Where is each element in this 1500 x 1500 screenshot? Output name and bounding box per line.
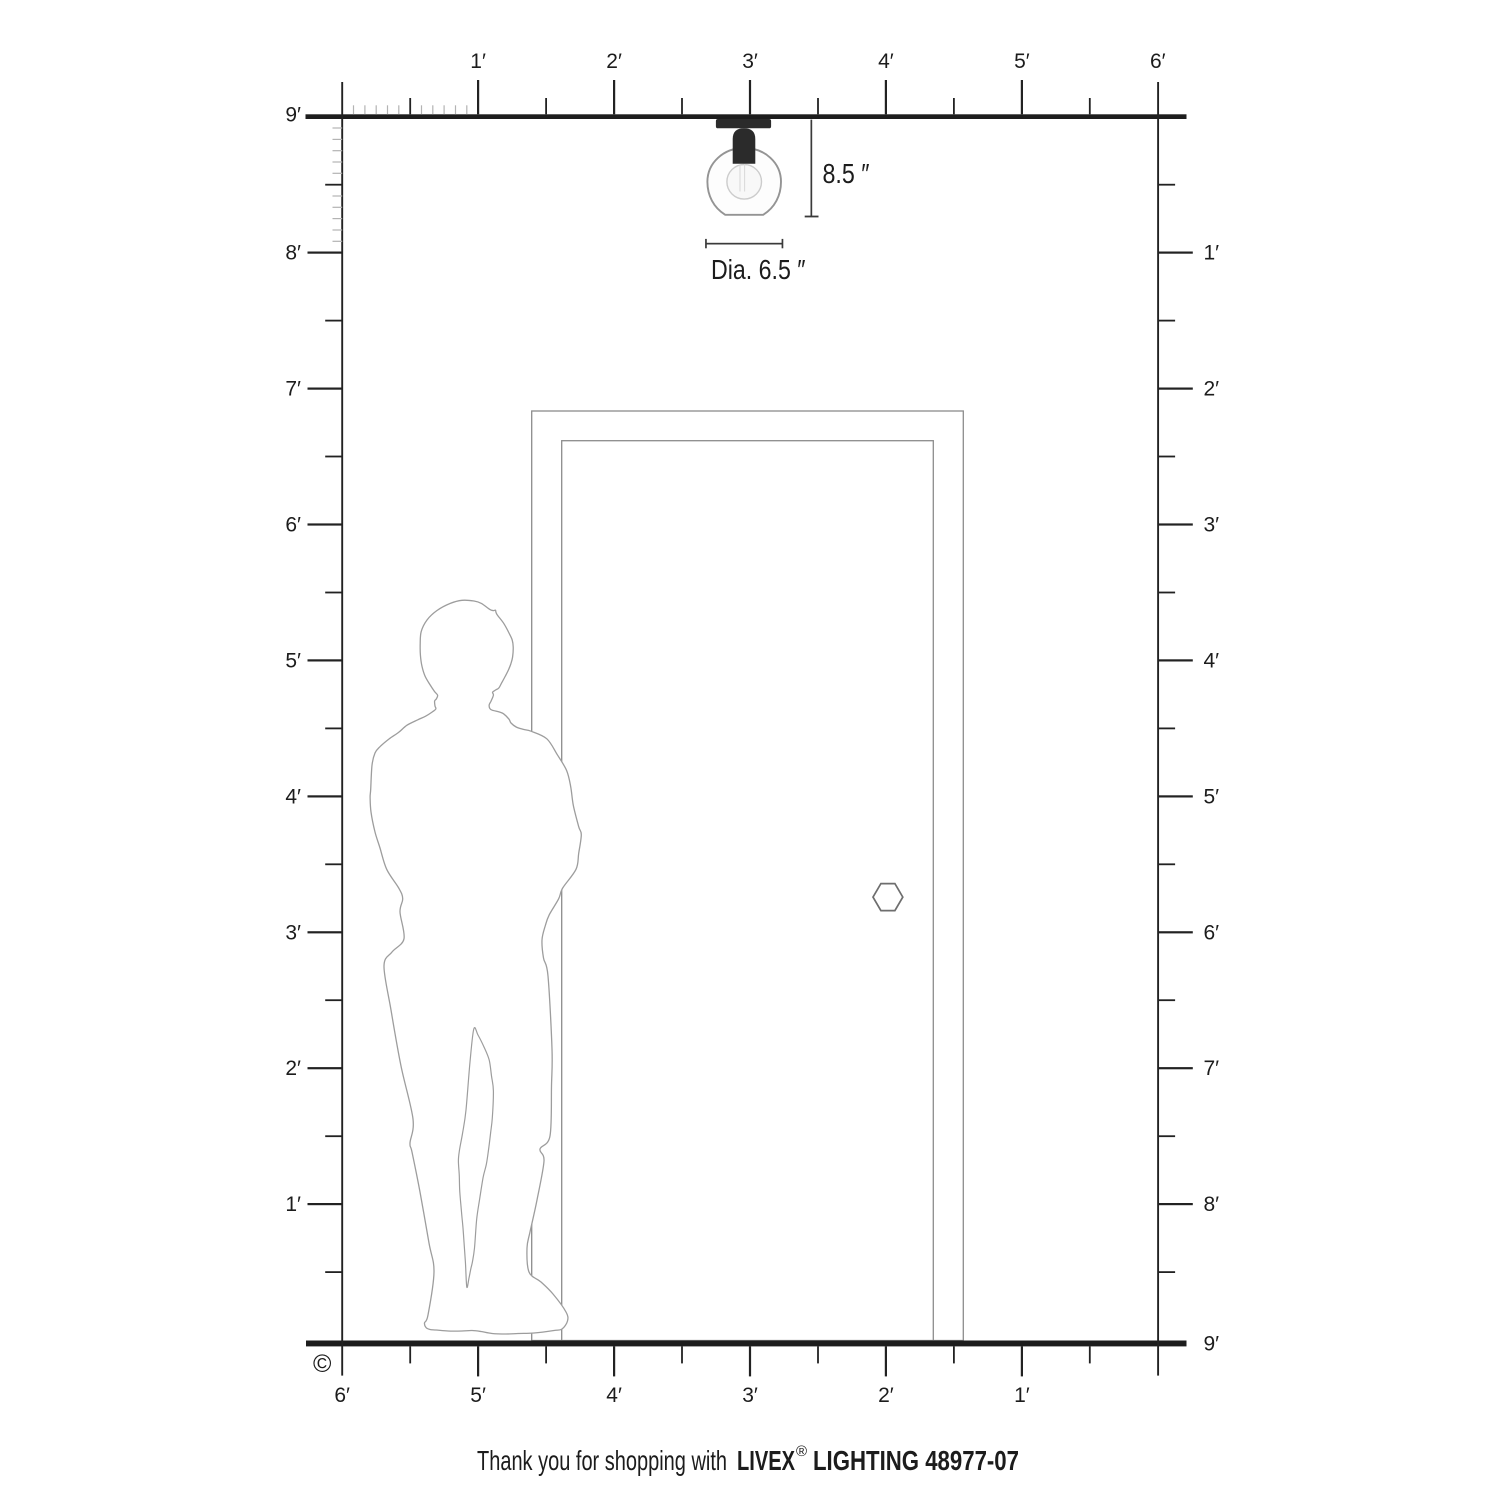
svg-text:4′: 4′ bbox=[606, 1384, 622, 1407]
svg-text:3′: 3′ bbox=[742, 1384, 758, 1407]
svg-text:3′: 3′ bbox=[285, 921, 301, 944]
svg-text:2′: 2′ bbox=[1204, 378, 1220, 401]
svg-text:5′: 5′ bbox=[285, 649, 301, 672]
svg-text:6′: 6′ bbox=[285, 514, 301, 537]
svg-text:9′: 9′ bbox=[285, 104, 301, 127]
svg-text:1′: 1′ bbox=[1014, 1384, 1030, 1407]
svg-text:8′: 8′ bbox=[285, 242, 301, 265]
svg-text:1′: 1′ bbox=[470, 50, 486, 73]
svg-text:LIVEX: LIVEX bbox=[737, 1445, 795, 1476]
svg-text:Thank you for shopping with: Thank you for shopping with bbox=[477, 1445, 727, 1476]
svg-text:7′: 7′ bbox=[285, 378, 301, 401]
svg-text:4′: 4′ bbox=[1204, 649, 1220, 672]
svg-text:8.5 ″: 8.5 ″ bbox=[823, 158, 870, 189]
svg-text:7′: 7′ bbox=[1204, 1057, 1220, 1080]
svg-text:9′: 9′ bbox=[1204, 1332, 1220, 1355]
svg-text:®: ® bbox=[796, 1443, 807, 1460]
svg-text:8′: 8′ bbox=[1204, 1193, 1220, 1216]
svg-text:Dia. 6.5 ″: Dia. 6.5 ″ bbox=[711, 254, 806, 285]
svg-text:©: © bbox=[313, 1350, 332, 1378]
svg-text:2′: 2′ bbox=[606, 50, 622, 73]
svg-text:5′: 5′ bbox=[470, 1384, 486, 1407]
svg-text:6′: 6′ bbox=[334, 1384, 350, 1407]
svg-text:3′: 3′ bbox=[1204, 514, 1220, 537]
svg-text:5′: 5′ bbox=[1014, 50, 1030, 73]
svg-text:3′: 3′ bbox=[742, 50, 758, 73]
svg-text:5′: 5′ bbox=[1204, 785, 1220, 808]
svg-text:2′: 2′ bbox=[878, 1384, 894, 1407]
svg-text:2′: 2′ bbox=[285, 1057, 301, 1080]
svg-text:4′: 4′ bbox=[285, 785, 301, 808]
svg-text:LIGHTING 48977-07: LIGHTING 48977-07 bbox=[813, 1445, 1019, 1476]
svg-text:1′: 1′ bbox=[285, 1193, 301, 1216]
svg-text:1′: 1′ bbox=[1204, 242, 1220, 265]
svg-text:4′: 4′ bbox=[878, 50, 894, 73]
svg-text:6′: 6′ bbox=[1150, 50, 1166, 73]
svg-text:6′: 6′ bbox=[1204, 921, 1220, 944]
